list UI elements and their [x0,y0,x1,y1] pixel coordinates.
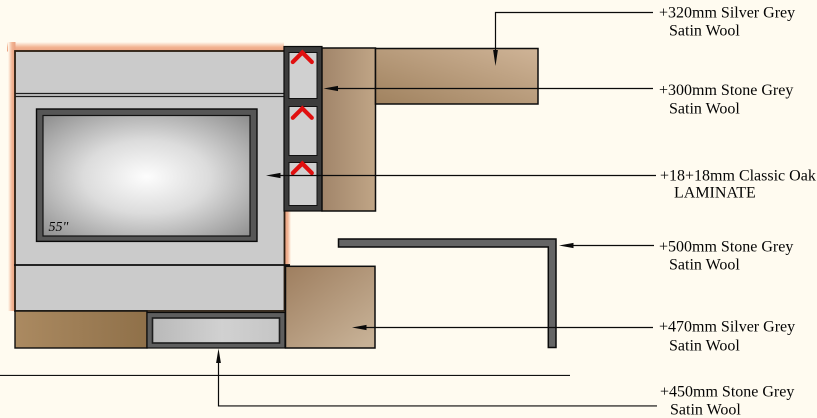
svg-text:Satin Wool: Satin Wool [669,337,740,354]
svg-text:Satin Wool: Satin Wool [669,23,740,40]
svg-text:+320mm Silver Grey: +320mm Silver Grey [659,5,795,22]
svg-text:LAMINATE: LAMINATE [674,184,756,201]
svg-text:Satin Wool: Satin Wool [670,401,741,418]
svg-text:+300mm Stone Grey: +300mm Stone Grey [659,82,793,99]
svg-text:Satin Wool: Satin Wool [669,101,740,118]
svg-text:Satin Wool: Satin Wool [669,256,740,273]
svg-text:+450mm Stone Grey: +450mm Stone Grey [660,383,794,400]
svg-text:+18+18mm Classic Oak: +18+18mm Classic Oak [660,168,816,185]
svg-text:55": 55" [49,220,69,235]
svg-text:+470mm Silver Grey: +470mm Silver Grey [659,319,795,336]
svg-text:+500mm Stone Grey: +500mm Stone Grey [659,239,793,256]
